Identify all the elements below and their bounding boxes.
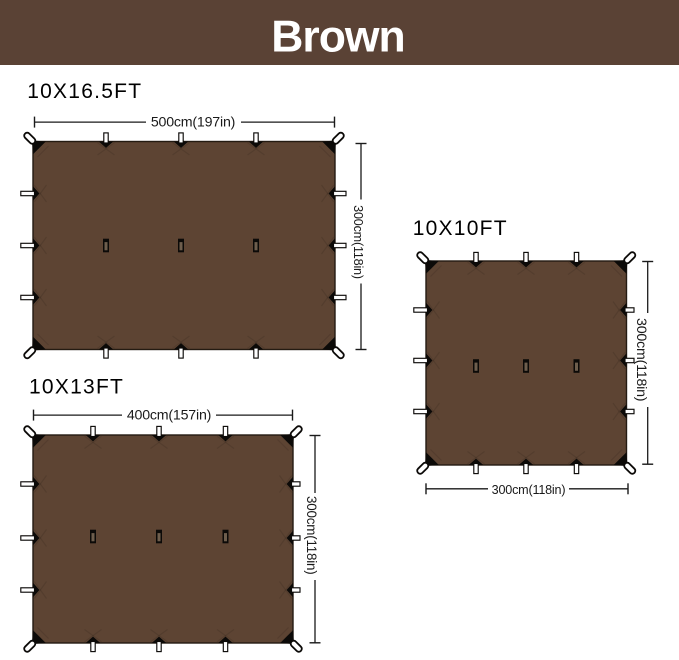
svg-text:500cm(197in): 500cm(197in)	[151, 115, 235, 131]
svg-text:300cm(118in): 300cm(118in)	[304, 496, 319, 574]
svg-text:300cm(118in): 300cm(118in)	[351, 205, 365, 279]
svg-text:300cm(118in): 300cm(118in)	[492, 483, 566, 497]
svg-text:Brown: Brown	[271, 13, 404, 62]
svg-text:400cm(157in): 400cm(157in)	[127, 408, 211, 424]
svg-text:10X16.5FT: 10X16.5FT	[27, 80, 142, 103]
svg-text:10X13FT: 10X13FT	[29, 376, 124, 399]
svg-text:300cm(118in): 300cm(118in)	[633, 318, 649, 401]
svg-text:10X10FT: 10X10FT	[413, 217, 508, 240]
